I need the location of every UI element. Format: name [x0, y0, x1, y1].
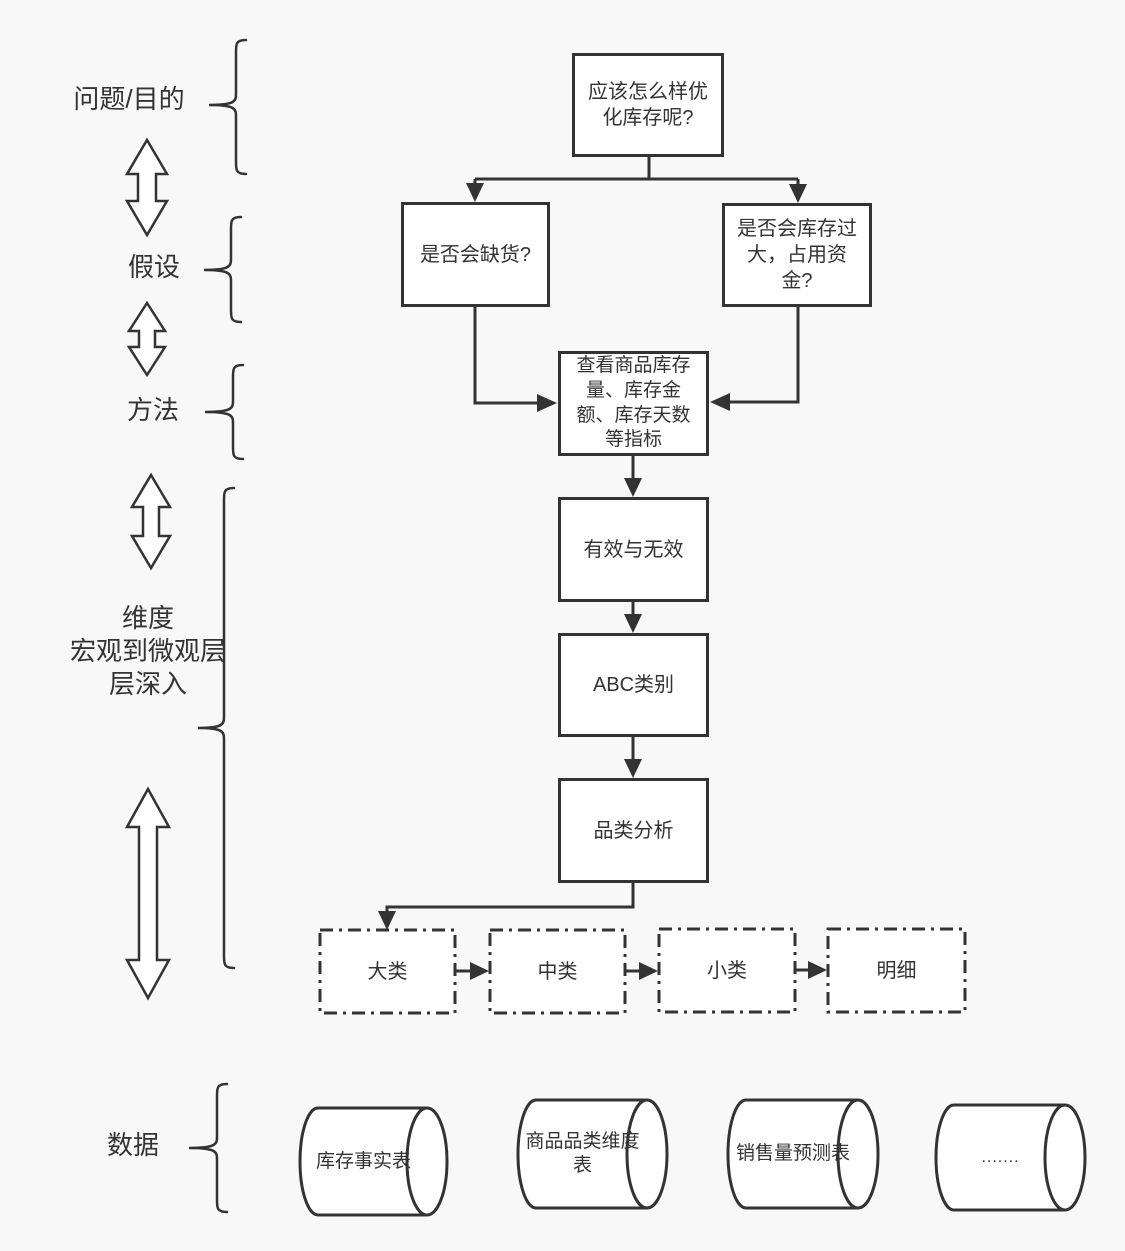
arrowhead-to-overstock [789, 184, 807, 203]
connector-metrics-to-valid [624, 456, 642, 497]
double-arrow-dimension-data [127, 789, 169, 998]
double-arrow-hypothesis-method [129, 303, 165, 375]
arrowhead-to-shortage [466, 183, 484, 202]
row-label-problem: 问题/目的 [39, 83, 219, 116]
connector-abc-to-category [624, 737, 642, 778]
cylinder-sales-forecast [728, 1100, 878, 1208]
node-overstock: 是否会库存过 大，占用资 金? [722, 203, 872, 307]
cylinder-category-dimension [518, 1100, 667, 1208]
connector-overstock-to-metrics [710, 307, 798, 411]
connector-minor-to-detail [795, 961, 827, 979]
connector-middle-to-minor [625, 962, 658, 980]
box-major-category [320, 930, 455, 1013]
box-minor-category [659, 929, 795, 1012]
connector-major-to-middle [455, 962, 489, 980]
box-detail-category [828, 929, 965, 1012]
connector-shortage-to-metrics [475, 307, 557, 412]
data-cylinders [300, 1100, 1085, 1215]
cylinder-more-tables [936, 1105, 1085, 1210]
connector-valid-to-abc [624, 602, 642, 633]
cylinder-inventory-fact [300, 1108, 447, 1215]
connector-question-split [466, 157, 807, 203]
node-abc: ABC类别 [558, 633, 709, 737]
double-arrow-method-dimension [132, 475, 170, 568]
diagram-canvas: 问题/目的 假设 方法 维度 宏观到微观层 层深入 数据 应该怎么样优 化库存呢… [0, 0, 1125, 1251]
node-shortage: 是否会缺货? [401, 202, 550, 307]
brace-dimension [198, 488, 234, 968]
row-label-method: 方法 [63, 394, 243, 427]
node-metrics: 查看商品库存 量、库存金 额、库存天数 等指标 [558, 351, 709, 456]
row-label-hypothesis: 假设 [64, 251, 244, 284]
double-arrow-problem-hypothesis [127, 140, 167, 235]
node-category-analysis: 品类分析 [558, 778, 709, 883]
row-label-data: 数据 [43, 1129, 223, 1162]
box-middle-category [490, 930, 625, 1013]
connector-category-to-major [378, 883, 633, 930]
row-label-dimension: 维度 宏观到微观层 层深入 [38, 602, 258, 701]
node-question: 应该怎么样优 化库存呢? [572, 53, 724, 157]
node-valid-invalid: 有效与无效 [558, 497, 709, 602]
